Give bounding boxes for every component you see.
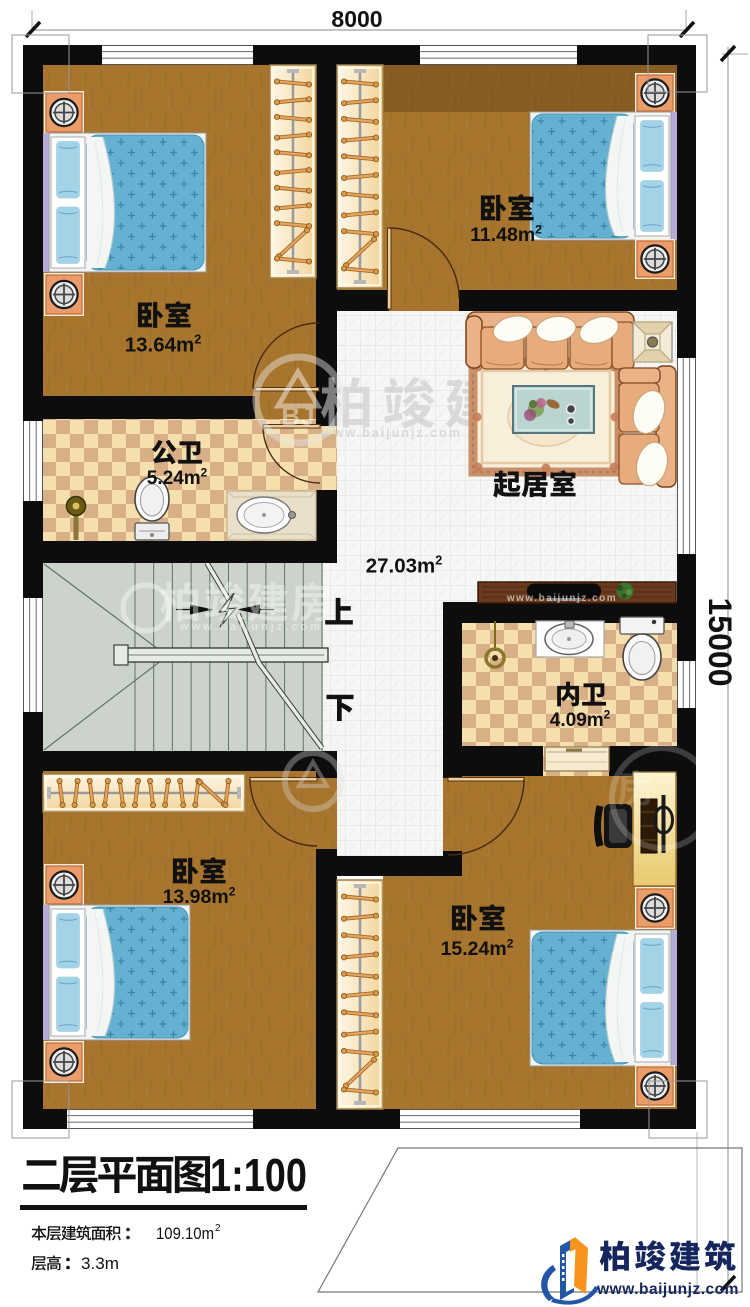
svg-text:11.48m2: 11.48m2 — [470, 223, 542, 246]
svg-text:4.09m2: 4.09m2 — [550, 708, 611, 731]
svg-text:www.baijunjz.com: www.baijunjz.com — [506, 593, 617, 604]
svg-text:15000: 15000 — [702, 598, 738, 687]
svg-text:BJ: BJ — [281, 401, 314, 431]
svg-text:5.24m2: 5.24m2 — [147, 466, 208, 489]
svg-text:15.24m2: 15.24m2 — [441, 937, 514, 960]
svg-text:8000: 8000 — [331, 6, 382, 32]
svg-text:1:100: 1:100 — [210, 1149, 307, 1201]
svg-text:109.10m: 109.10m — [156, 1224, 214, 1243]
svg-text:13.98m2: 13.98m2 — [163, 885, 236, 908]
svg-text:www.baijunjz.com: www.baijunjz.com — [596, 1281, 739, 1298]
svg-text:www.baijunjz.com: www.baijunjz.com — [321, 426, 462, 440]
svg-text:13.64m2: 13.64m2 — [125, 333, 202, 357]
svg-text:27.03m2: 27.03m2 — [366, 554, 443, 578]
svg-text:www.baijunjz.com: www.baijunjz.com — [179, 621, 323, 633]
svg-text:3.3m: 3.3m — [81, 1254, 119, 1273]
svg-text:2: 2 — [215, 1223, 221, 1234]
